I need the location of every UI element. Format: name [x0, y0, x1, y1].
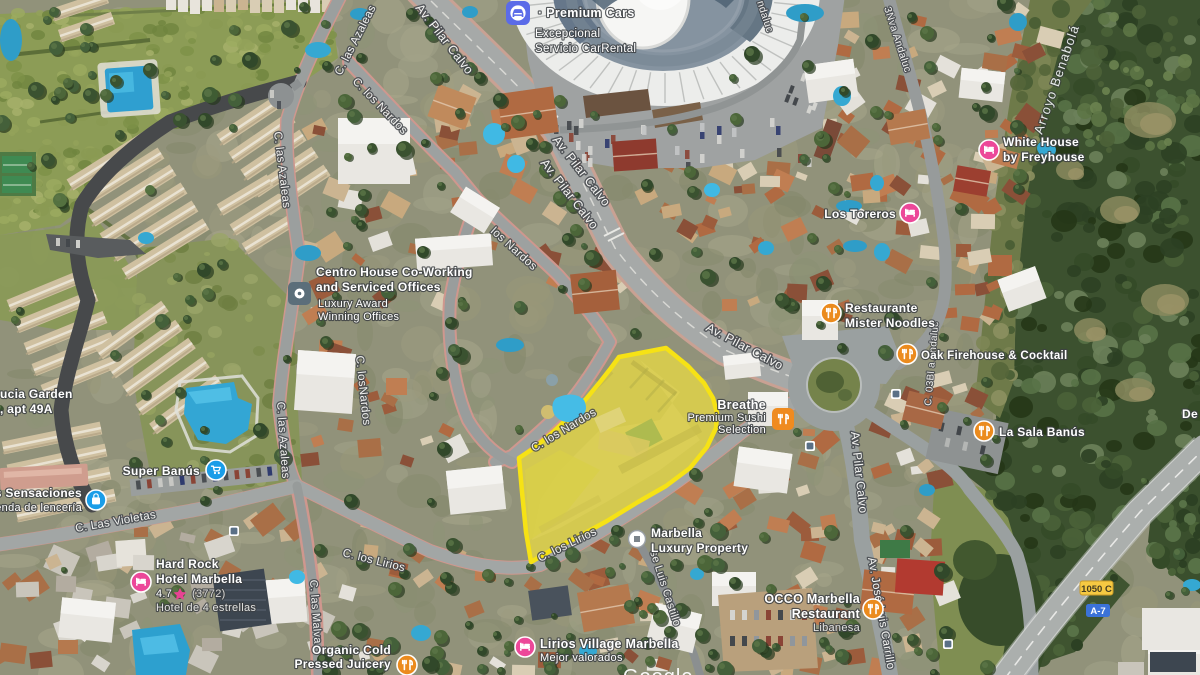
svg-text:, apt 49A: , apt 49A [0, 402, 53, 416]
svg-text:by Freyhouse: by Freyhouse [1003, 150, 1085, 164]
svg-text:Los Toreros: Los Toreros [824, 207, 896, 221]
svg-text:Breathe: Breathe [717, 398, 766, 412]
svg-text:Restaurante: Restaurante [845, 301, 918, 315]
svg-text:ucia Garden: ucia Garden [0, 387, 73, 401]
svg-text:White House: White House [1003, 135, 1079, 149]
svg-text:Luxury Award: Luxury Award [318, 298, 388, 310]
svg-text:Mejor valorados: Mejor valorados [540, 652, 623, 664]
svg-text:Libanesa: Libanesa [813, 622, 861, 634]
svg-text:Oak Firehouse & Cocktail: Oak Firehouse & Cocktail [921, 350, 1068, 362]
svg-text:Super Banús: Super Banús [123, 464, 200, 478]
svg-text:La Sala Banús: La Sala Banús [999, 425, 1085, 439]
svg-text:Hard Rock: Hard Rock [156, 557, 219, 571]
svg-text:Selection: Selection [718, 424, 766, 436]
svg-text:Pressed Juicery: Pressed Juicery [294, 657, 391, 671]
svg-text:Tienda de lencería: Tienda de lencería [0, 502, 83, 514]
svg-text:Lirios Village Marbella: Lirios Village Marbella [540, 637, 679, 651]
svg-text:Restaurant: Restaurant [792, 607, 861, 621]
svg-text:1050 C: 1050 C [1081, 584, 1112, 595]
svg-text:Premium Sushi: Premium Sushi [688, 412, 766, 424]
svg-text:s Sensaciones: s Sensaciones [0, 486, 82, 500]
svg-text:Luxury Property: Luxury Property [651, 541, 748, 555]
svg-text:De: De [1182, 407, 1198, 421]
svg-text:Organic Cold: Organic Cold [312, 643, 391, 657]
svg-text:Hotel de 4 estrellas: Hotel de 4 estrellas [156, 602, 256, 614]
svg-text:Excepcional: Excepcional [535, 28, 600, 40]
svg-text:OCCO Marbella: OCCO Marbella [764, 592, 860, 606]
svg-text:A-7: A-7 [1090, 606, 1105, 617]
svg-text:Mister Noodles: Mister Noodles [845, 316, 935, 330]
svg-text:(3772): (3772) [192, 588, 226, 600]
svg-text:Marbella: Marbella [651, 526, 702, 540]
svg-text:Winning Offices: Winning Offices [318, 311, 400, 323]
svg-text:Google: Google [623, 666, 694, 675]
svg-text:Hotel Marbella: Hotel Marbella [156, 572, 242, 586]
svg-text:Servicio CarRental: Servicio CarRental [535, 43, 636, 55]
svg-text:· Premium Cars: · Premium Cars [538, 6, 635, 20]
svg-text:Centro House Co-Working: Centro House Co-Working [316, 265, 473, 279]
svg-text:and Serviced Offices: and Serviced Offices [316, 280, 441, 294]
svg-text:4.7: 4.7 [156, 588, 172, 600]
